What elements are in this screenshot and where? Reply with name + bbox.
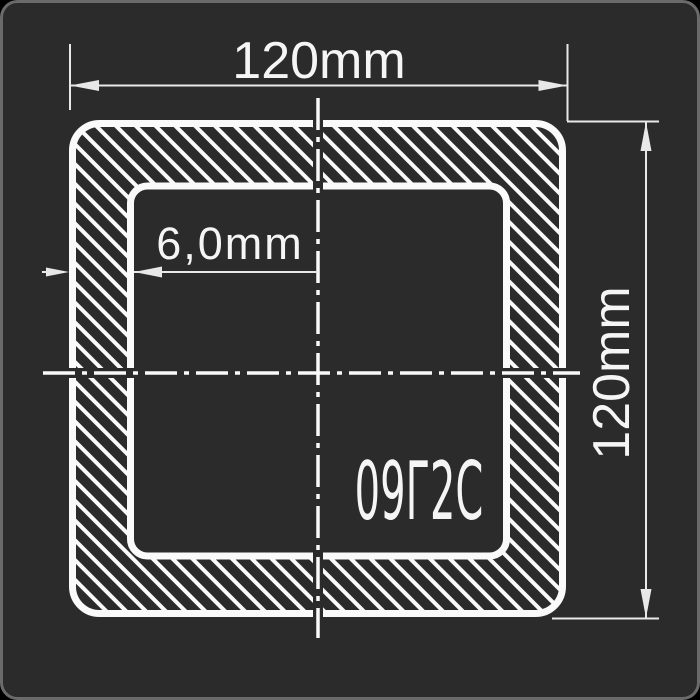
width-dim-label: 120mm <box>232 32 405 90</box>
drawing-canvas: 120mm 120mm 6,0mm 09Г2С <box>0 0 700 700</box>
steel-grade-label: 09Г2С <box>355 444 484 538</box>
cross-section-svg: 120mm 120mm 6,0mm 09Г2С <box>0 0 700 700</box>
height-dim-label: 120mm <box>583 286 641 459</box>
thickness-dim-label: 6,0mm <box>156 218 304 269</box>
